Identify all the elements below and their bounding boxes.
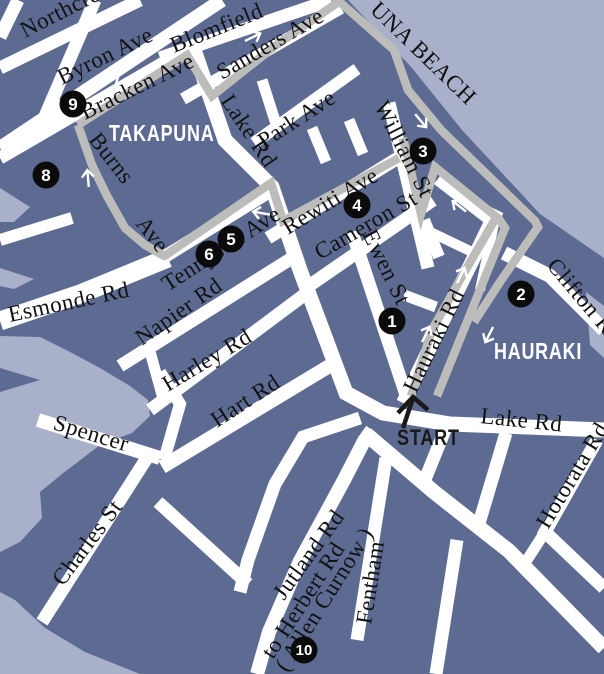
svg-text:8: 8 <box>41 166 50 185</box>
svg-text:HAURAKI: HAURAKI <box>494 339 582 365</box>
svg-text:3: 3 <box>418 142 427 161</box>
svg-text:TAKAPUNA: TAKAPUNA <box>109 121 214 147</box>
svg-text:1: 1 <box>387 312 396 331</box>
svg-text:10: 10 <box>296 642 313 659</box>
svg-text:9: 9 <box>68 95 77 114</box>
svg-text:2: 2 <box>516 285 525 304</box>
svg-text:6: 6 <box>204 245 213 264</box>
svg-text:START: START <box>397 426 460 450</box>
svg-text:5: 5 <box>226 230 235 249</box>
svg-text:4: 4 <box>352 196 362 215</box>
